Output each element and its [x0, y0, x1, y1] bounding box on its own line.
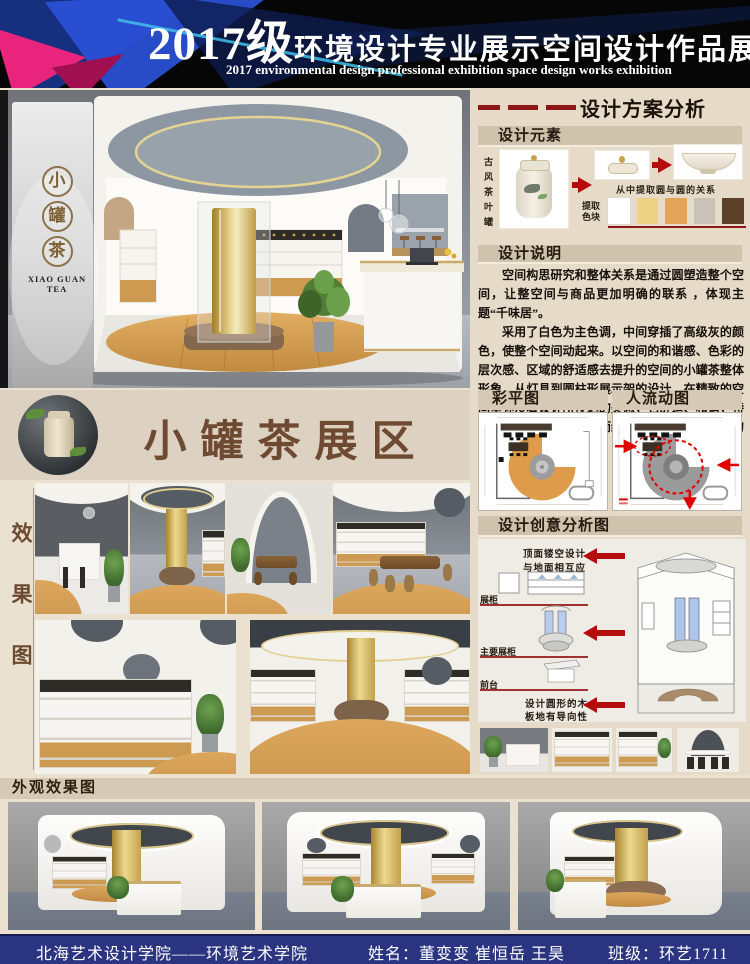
- lid-knob: [619, 156, 625, 163]
- palette-label: 提取色块: [582, 201, 604, 223]
- main-showcase-sketch: [528, 605, 584, 653]
- front-desk-underline: [480, 689, 588, 691]
- render-thumbnail: [552, 728, 612, 772]
- render-thumbnail: [250, 620, 470, 774]
- showcase-sketch: [498, 571, 586, 595]
- poster-subtitle: 2017 environmental design professional e…: [226, 62, 672, 78]
- effect-gallery: 效果图: [0, 482, 470, 776]
- analysis-title: 设计方案分析: [580, 93, 706, 122]
- render-thumbnail: [333, 483, 470, 614]
- section-elements-body: 古风茶叶罐 从中提取圆与圆的关系 提取色块: [478, 145, 742, 251]
- exterior-render: [518, 802, 750, 930]
- render-thumbnail: [227, 483, 330, 614]
- render-thumbnail: [35, 620, 236, 774]
- logo-latin-text: XIAO GUAN TEA: [20, 274, 94, 294]
- palette-underline: [608, 226, 746, 228]
- section-creative-header: 设计创意分析图: [478, 516, 742, 537]
- badge-leaf: [70, 447, 86, 456]
- footer-bar: 北海艺术设计学院——环境艺术学院 姓名：董变变 崔恒岳 王昊 班级：环艺1711: [0, 934, 750, 964]
- exterior-section-title: 外观效果图: [0, 778, 750, 799]
- flow-plan-panel: 人流动图: [612, 390, 742, 511]
- tea-jar-photo: [500, 150, 568, 228]
- logo-char-circle: 小: [42, 166, 73, 197]
- gallery-divider-line: [33, 488, 34, 770]
- color-plan-panel: 彩平图: [478, 390, 608, 511]
- render-thumbnail: [35, 483, 128, 614]
- bowl-photo: [674, 145, 742, 179]
- render-thumbnail: [677, 728, 739, 772]
- xiao-guan-tea-logo: 小 罐 茶 XIAO GUAN TEA: [20, 162, 94, 294]
- lid-shape: [608, 163, 638, 174]
- front-desk-sketch: [542, 658, 582, 684]
- render-thumbnail: [130, 483, 225, 614]
- exterior-section: 外观效果图: [0, 778, 750, 932]
- jar-knob: [531, 155, 537, 161]
- exterior-render: [262, 802, 510, 930]
- logo-char-circle: 茶: [42, 236, 73, 267]
- section-elements-header: 设计元素: [478, 126, 742, 147]
- booth-sketch-drawing: [628, 543, 744, 719]
- footer-names: 姓名：董变变 崔恒岳 王昊: [368, 940, 565, 964]
- palette-swatches: [608, 198, 744, 224]
- creative-analysis-body: 顶面镂空设计 与地面相互应 展柜: [478, 539, 746, 722]
- dash-decor: [478, 105, 500, 110]
- creative-note-top-line1: 顶面镂空设计: [523, 546, 586, 560]
- color-plan-title: 彩平图: [478, 390, 608, 410]
- analysis-title-row: 设计方案分析: [478, 94, 744, 120]
- render-thumbnail: [480, 728, 548, 772]
- dash-decor: [508, 105, 538, 110]
- arrow-left-icon: [583, 625, 625, 641]
- palette-swatch: [694, 198, 716, 224]
- palette-swatch: [665, 198, 687, 224]
- render-thumbnail: [616, 728, 672, 772]
- zone-banner: 小罐茶展区: [0, 390, 470, 480]
- poster-page: 2017级环境设计专业展示空间设计作品展 2017 environmental …: [0, 0, 750, 964]
- flow-plan-title: 人流动图: [612, 390, 742, 410]
- palette-swatch: [722, 198, 744, 224]
- arrow-right-icon: [572, 177, 592, 193]
- footer-school: 北海艺术设计学院——环境艺术学院: [36, 940, 308, 964]
- jar-lid-photo: [595, 151, 649, 179]
- exterior-render: [8, 802, 255, 930]
- section-description-header: 设计说明: [478, 245, 742, 264]
- jar-lid: [520, 160, 550, 171]
- jar-bird-painting: [524, 184, 540, 193]
- arrow-left-icon: [583, 697, 625, 713]
- header-banner: 2017级环境设计专业展示空间设计作品展 2017 environmental …: [0, 0, 750, 88]
- elements-caption: 从中提取圆与圆的关系: [590, 183, 742, 196]
- creative-note-bottom-line1: 设计圆形的木: [525, 696, 588, 710]
- tea-jar-badge: [18, 395, 98, 475]
- arrow-right-icon: [652, 157, 672, 173]
- description-paragraph-1: 空间构思研究和整体关系是通过圆塑造整个空间，让整空间与商品更加明确的联系 ，体现…: [478, 266, 744, 323]
- elements-vertical-label: 古风茶叶罐: [482, 157, 495, 232]
- bowl-foot: [700, 169, 716, 174]
- footer-class: 班级：环艺1711: [608, 940, 728, 964]
- creative-note-bottom-line2: 板地有导向性: [525, 709, 588, 723]
- palette-swatch: [608, 198, 630, 224]
- logo-char-circle: 罐: [42, 201, 73, 232]
- flow-plan-drawing: [612, 412, 742, 511]
- dash-decor: [546, 105, 576, 110]
- main-interior-render: 小 罐 茶 XIAO GUAN TEA: [8, 90, 470, 388]
- badge-leaf: [26, 409, 44, 419]
- gallery-vertical-label: 效果图: [6, 522, 36, 705]
- left-edge-strip: [0, 90, 8, 388]
- palette-swatch: [637, 198, 659, 224]
- color-plan-drawing: [478, 412, 608, 511]
- analysis-panel: 设计方案分析 设计元素 古风茶叶罐 从中提取圆与圆的关系: [470, 88, 750, 775]
- zone-banner-title: 小罐茶展区: [108, 407, 464, 469]
- arrow-left-icon: [583, 548, 625, 564]
